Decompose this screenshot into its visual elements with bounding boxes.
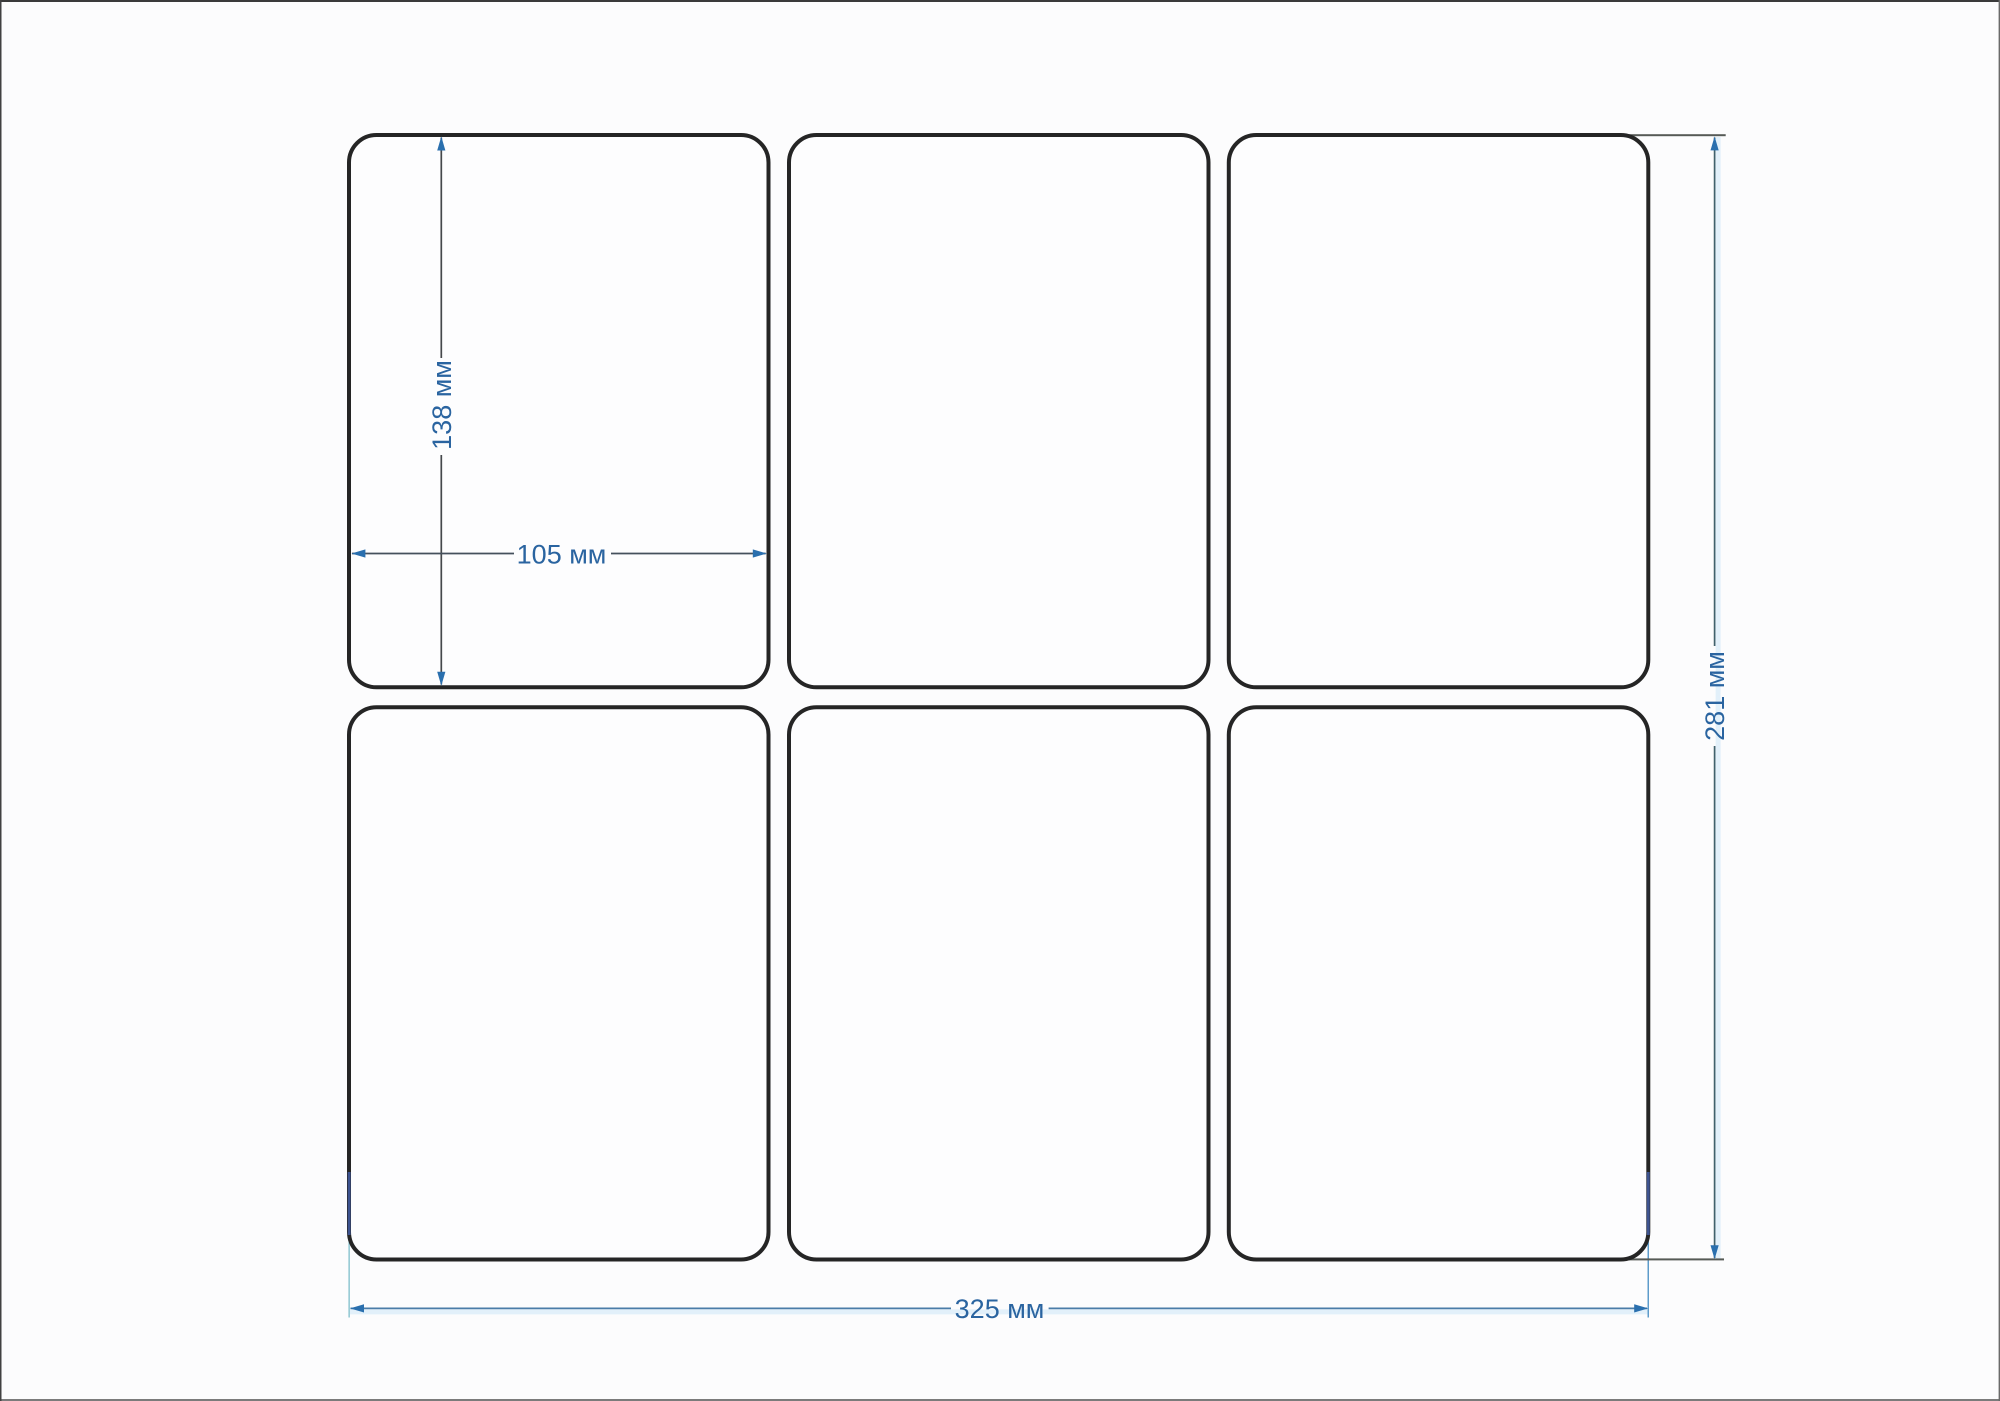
svg-text:325 мм: 325 мм [955,1294,1045,1324]
svg-text:138 мм: 138 мм [427,360,457,450]
svg-text:105 мм: 105 мм [517,539,607,569]
svg-text:281 мм: 281 мм [1700,651,1730,741]
